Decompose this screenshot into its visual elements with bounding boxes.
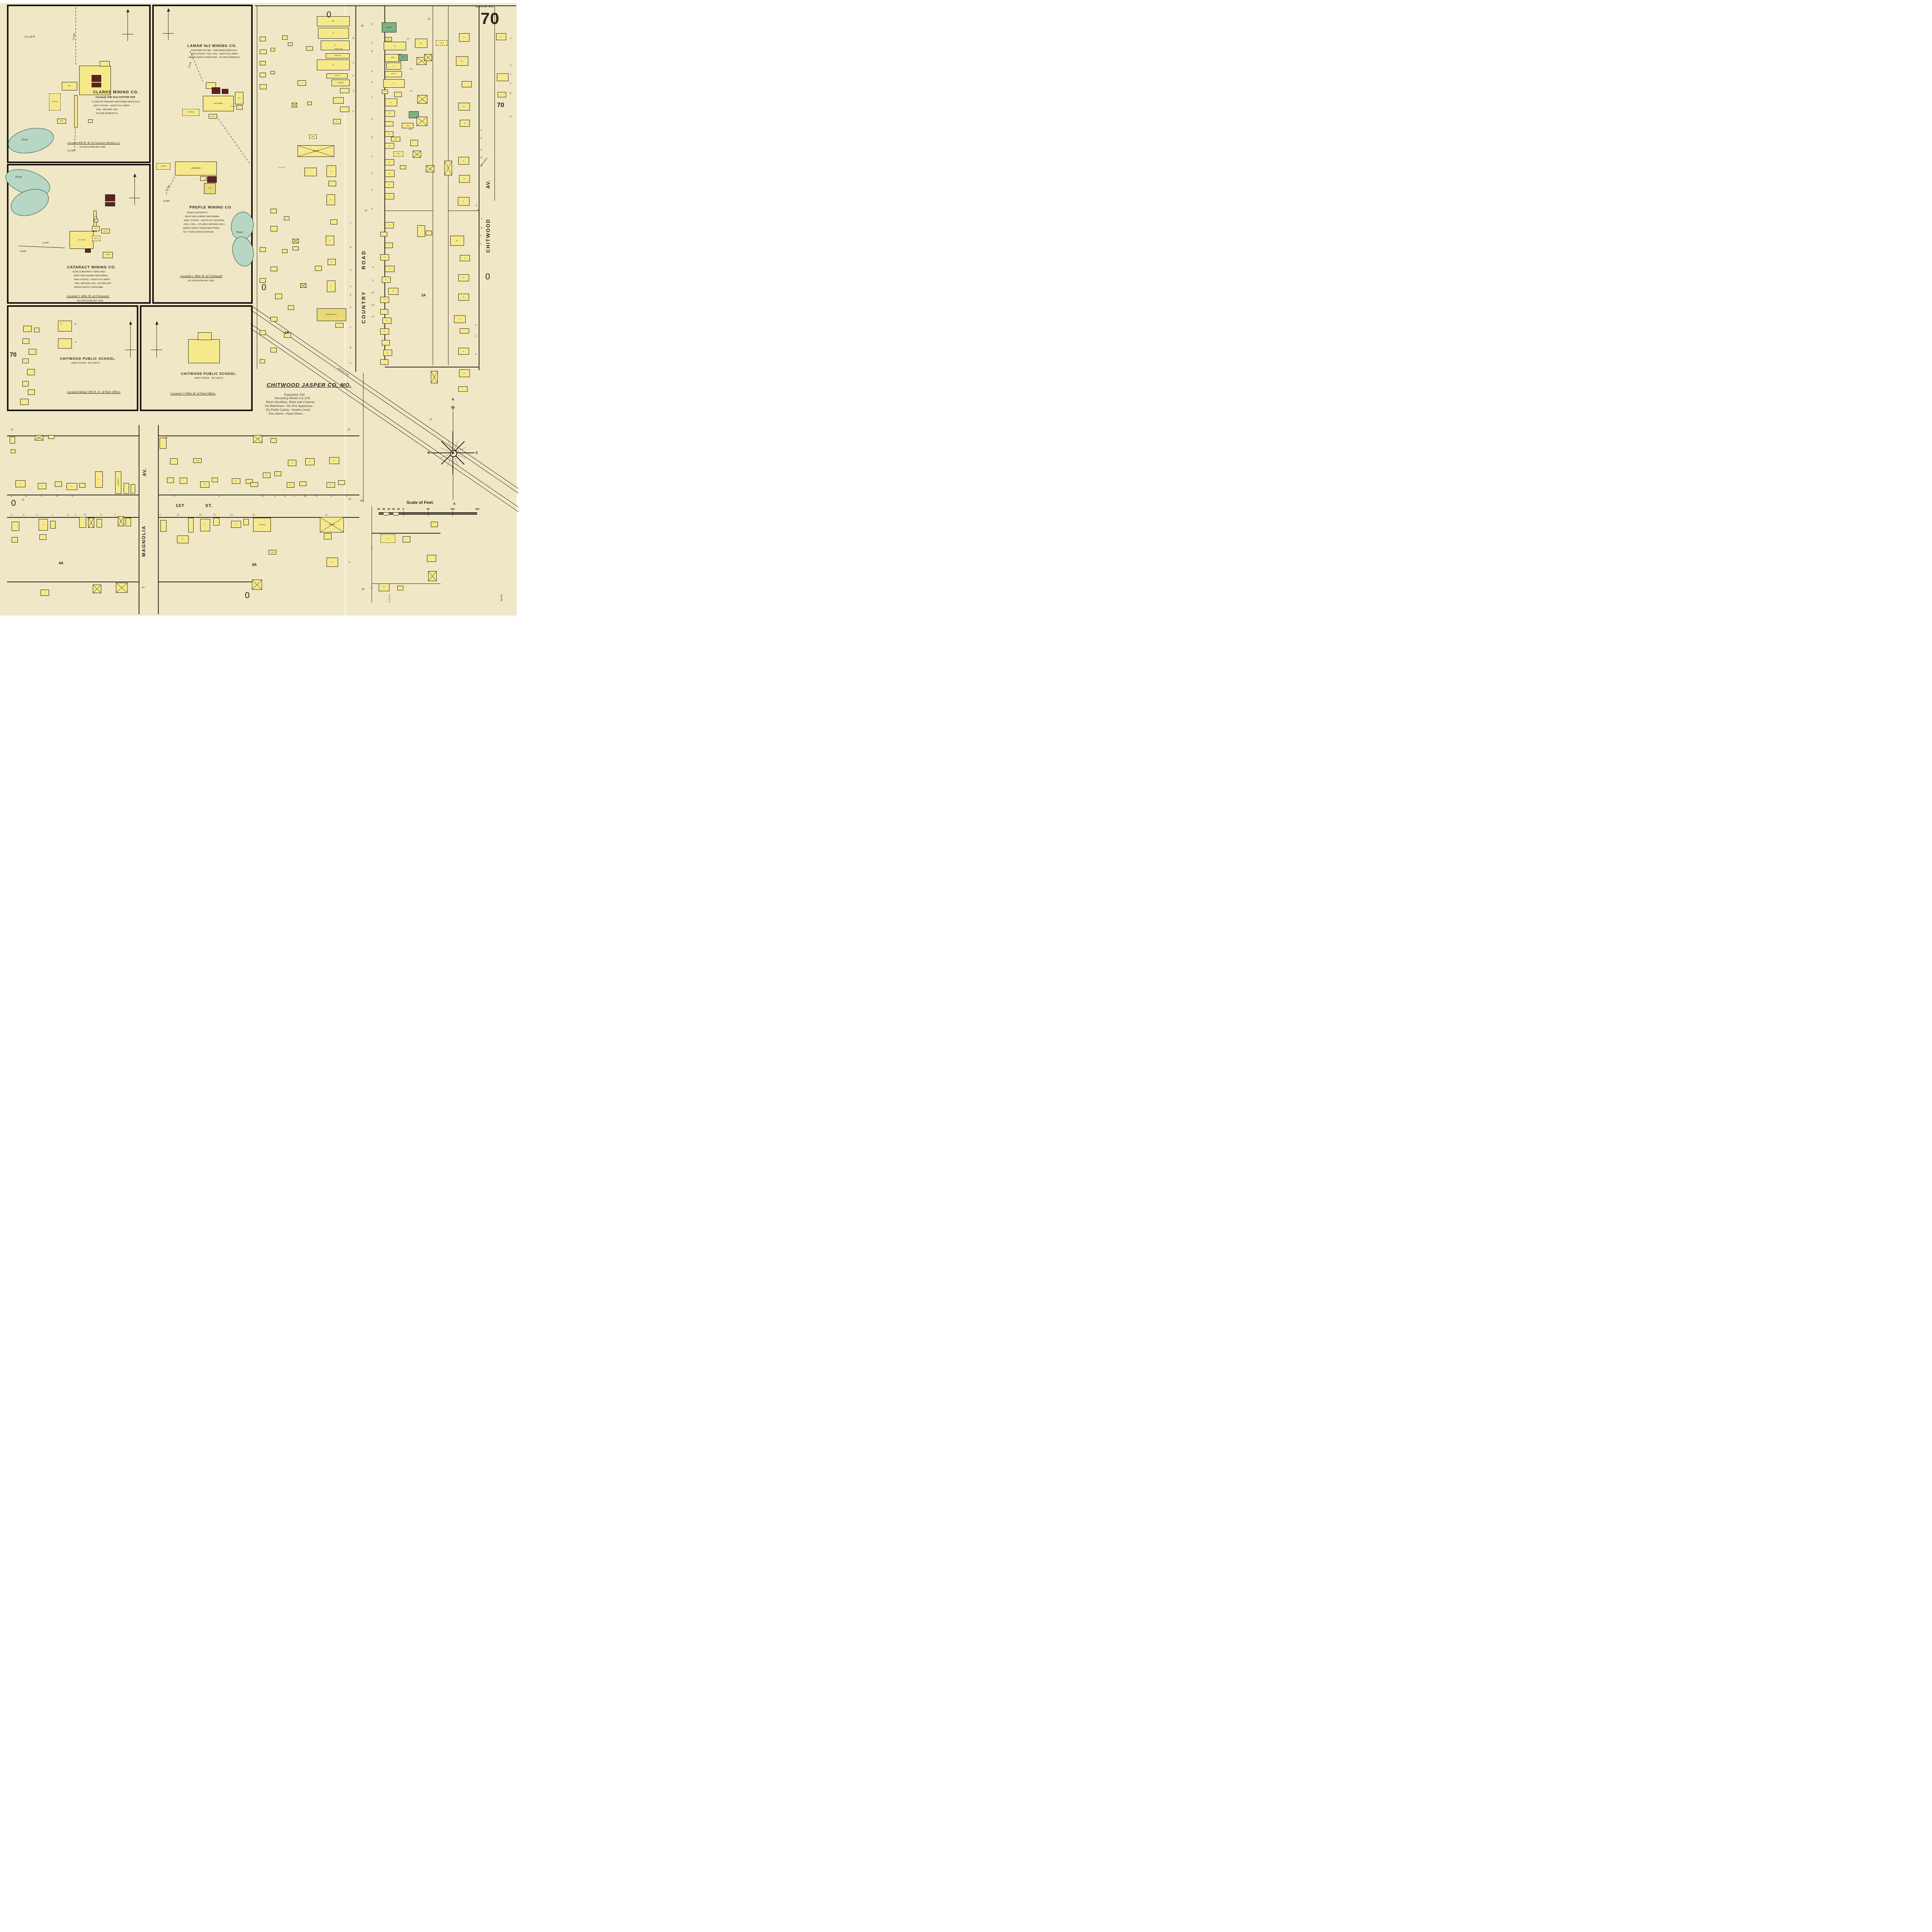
map-label: N. [480,148,483,151]
building-label: D. [71,486,73,487]
building: D. [458,197,469,206]
map-label: D2 [371,23,373,25]
building: D. [379,583,389,591]
scale-bar-tick-label: 20 [392,508,395,511]
map-label: Q. [10,514,12,516]
building [12,537,18,543]
building: D. [329,457,339,464]
building-label: D. [463,106,465,107]
north-arrow-head [133,173,136,177]
building: D. [327,165,336,177]
map-label: ST. [206,503,213,508]
building: D. [333,119,341,124]
building: D. [200,481,209,488]
map-label: A. [350,362,352,365]
building [400,165,406,169]
building-label: BLKSM. [386,27,392,28]
building-label: P.O. [384,91,386,92]
building-label: COAL [208,188,212,189]
building [335,323,344,328]
building-label: SHED [397,153,400,155]
map-label: WATER SUPPLY FROM DEEP POND.- [183,227,221,230]
building [382,340,390,345]
building [79,517,86,528]
building [92,83,101,87]
map-label: U. [352,75,355,77]
north-arrow-crossbar [151,350,162,350]
map-label: T. [510,73,512,76]
map-label: NO EXPOSURE ANY SIDE. [80,146,106,148]
building-label: ENG [68,85,71,87]
building: D. [327,482,335,488]
building [338,480,345,485]
map-label: M. [304,495,307,498]
building [74,95,78,128]
map-label: NO EXPOSURE ANY SIDE. [77,300,104,302]
map-label: S1 [371,207,373,209]
building: D. [415,39,427,48]
building [243,519,249,525]
building [250,482,258,487]
building: D. [496,33,506,40]
map-label: Y. [371,587,372,589]
building-label: D. [332,561,333,563]
building: D. [385,170,395,177]
map-label: Formerly THE OLD COTTON TOP. [95,96,135,99]
building [260,37,266,41]
map-label: P. [480,129,482,132]
building [253,435,262,443]
map-label: F. [372,279,374,282]
north-arrow [168,11,168,40]
building: JIG ROOM [175,162,217,175]
building [198,332,212,340]
building: OIL HO. [101,229,110,233]
map-label: B. [475,324,477,327]
building-label: D. [20,483,21,485]
building-label: BLKSM [106,254,110,255]
building [282,249,287,253]
building [212,87,220,94]
map-label: O. [330,495,332,498]
map-label: F. [480,243,481,246]
map-label: Located 400 ft. W. of Cataract Mining Co… [67,141,120,145]
scale-bar-gap [393,512,398,515]
compass-direction-label: S [453,502,455,506]
compass-needle-north [453,411,453,446]
map-label: 60' [142,587,145,589]
map-label: CHITWOOD PUBLIC SCHOOL. [181,372,237,376]
scale-bar-tick-label: 100 [451,508,455,511]
north-arrow-crossbar [125,350,136,350]
building: D. [458,103,470,111]
building-label: D. [235,480,237,482]
building: D. [385,143,394,149]
building-label: D. [204,524,206,526]
map-label: G1. [325,514,328,516]
building-label: OFFICE [391,73,396,75]
building-label: D. [463,201,464,202]
map-label: 63' [22,498,25,502]
building: D. [385,159,394,165]
building: Boarding [332,80,350,86]
building [288,43,293,46]
building [270,348,277,352]
building [410,140,418,146]
building: D. [383,318,391,324]
building: JIG ROOM [203,96,234,111]
building [444,161,452,175]
street-line [479,6,480,370]
building: D. [385,131,393,137]
map-label: C2½ [406,38,410,40]
building-label: D. [463,160,464,162]
map-label: N. [316,495,318,498]
map-label: J. [274,495,276,498]
map-label: W. [352,37,355,39]
building-label: D. [393,291,394,292]
map-label: 50' [361,25,364,27]
building [397,586,403,590]
map-label: LAMAR №2 MINING CO. [187,44,237,48]
map-label: K. [284,495,286,498]
building-label: SHED [60,121,63,122]
map-label: J. [350,222,352,225]
building [88,518,94,528]
building: D. [39,519,48,531]
building [260,73,266,77]
map-label: CHITWOOD JASPER CO. MO. [267,382,352,388]
building-label: D. [329,240,331,241]
building [23,326,32,332]
map-label: DUMP [25,36,36,39]
map-label: THREE R'MS [334,48,343,50]
building [88,119,93,123]
map-label: 20' [347,428,351,431]
map-label: PREPLE MINING CO. [189,206,232,210]
building [385,121,393,126]
building-label: S. [393,83,395,85]
map-label: T1 [371,189,373,191]
building [28,389,35,395]
map-label: E. [350,294,352,297]
building: D. [305,458,315,465]
map-label: FLUME [42,241,49,244]
map-label: J. [481,218,483,220]
building: ENG [92,226,100,231]
building-label: SHED [394,139,397,140]
north-arrow-crossbar [129,198,140,198]
map-label: B. [75,323,77,326]
scale-bar-tick [452,511,453,516]
map-label: RUNS CONSTANTLY DAYS ONLY.- [73,271,107,273]
map-label: 12 [60,323,62,325]
map-label: G. [350,269,352,272]
building [307,102,312,105]
map-label: No Watchman.- No Fire Apparatus.- [265,405,314,408]
building-label: D. [309,461,311,463]
building [340,88,349,93]
map-label: G. [218,495,220,498]
building [124,483,129,494]
building-label: OIL HO. [104,231,107,232]
building-label: D. [290,484,291,486]
map-label: NIGHT AND SUNDAY WATCHMAN.- [185,216,220,218]
building-label: ORE BINS [188,112,194,113]
map-label: 3A [252,563,257,567]
street-line [355,6,356,372]
building-label: KETTLE [401,57,405,58]
map-label: T. [52,514,53,516]
building: Sal. [317,16,350,26]
building [50,521,56,529]
map-label: 0 [485,272,490,282]
building: D. [232,478,240,484]
building [275,294,282,299]
building: S. [317,60,350,70]
sheet-number-side: 70 [497,101,504,109]
map-label: S. [510,82,512,85]
building [380,232,387,236]
building: D. [326,236,334,245]
building-label: D. [330,286,332,287]
map-label: CATARACT MINING CO. [67,265,116,270]
map-label: B. [25,495,27,498]
compass-hub-dot [452,452,454,454]
building-label: LODGE HALL. [326,314,337,316]
building-label: D. [336,121,338,122]
map-label: 15' [429,418,433,421]
north-arrow-head [126,9,129,12]
building: SHED [436,40,447,46]
scale-bar-title: Scale of Feet. [406,500,434,505]
map-label: A2 [371,70,373,72]
building-label: S. [333,32,334,34]
building [299,481,306,486]
map-label: R. [510,92,512,95]
building [212,478,218,482]
street-line [7,582,139,582]
building: D. [383,350,392,356]
building: SHED [193,458,202,463]
map-label: 0 [262,282,266,293]
street-line [385,367,479,367]
building [315,266,322,271]
map-label: U. [510,65,512,67]
map-label: E1. [371,291,375,294]
building-label: D. [43,524,44,526]
building [207,176,217,183]
map-label: RUNS PART OF TIME. - WATCHMAN WHEN IDLE.… [191,49,239,52]
building-label: OIL HO [211,116,214,117]
map-label: NO FIRE APPARATUS. [96,112,118,115]
building [236,105,243,110]
building: D. [454,315,466,323]
map-label: HEAT STOVES - LIGHTS OIL LAMPS.- [94,105,131,107]
building [260,247,266,252]
building: ENG [235,92,243,104]
map-label: X. [100,514,102,516]
building [260,359,265,363]
building-label: S. [332,64,334,66]
building [11,449,15,453]
building-label: D. [330,484,332,486]
building: D. [15,480,26,487]
building: D. [263,473,270,478]
map-label: C1. [371,315,375,318]
map-label: Fire Alarm.- Pistol Shots.- [269,412,304,415]
building-label: MEAT. [391,57,395,59]
building: D. [385,182,394,188]
building: D. [460,255,470,261]
map-label: M. [480,156,483,159]
building: D. [385,266,395,272]
building: D. [288,460,296,466]
building [188,518,194,532]
building [170,458,178,464]
map-label: G. [372,266,375,269]
map-label: D. [56,495,58,498]
map-label: A. [10,495,12,498]
corner-note: 35/70 B [501,595,503,601]
building-label: D. [420,43,422,44]
map-label: FUEL, COAL.- (TO HAVE NATURAL GAS.-) [184,223,225,226]
building [20,399,29,405]
building [385,243,393,248]
building-label: D. [384,299,386,301]
building [428,571,437,581]
street-line [385,211,433,211]
building [298,80,306,86]
building: D. [231,521,241,528]
building [92,75,101,82]
map-label: 60' [165,437,167,439]
building: D. [66,483,77,490]
building-label: D. [500,36,502,37]
building: S. [383,79,405,88]
map-label: H. [349,246,352,248]
building: D. [450,236,464,246]
building: D. [95,471,103,488]
map-label: 50' 1" HOSE IN BOILER ROOM. [183,231,214,233]
building [93,585,101,593]
compass-direction-label: E [476,451,478,455]
building [58,338,72,349]
building-label: D. [389,184,390,185]
map-label: 20' [11,428,14,431]
scale-bar-tick-label: 150 [475,508,480,511]
building [340,107,349,112]
building: D. [459,369,470,377]
street-line [448,6,448,365]
building: D. [38,483,46,489]
scale-bar-tick-label: 50 [377,508,380,511]
map-label: AV. [485,180,491,189]
map-label: S. [352,111,355,113]
building [213,518,219,526]
map-label: MAGNOLIA [141,525,146,556]
building [460,328,469,333]
building: D. [382,277,391,283]
building: D. [385,193,394,199]
building: OFFICE [327,73,348,78]
building-label: S. [334,44,336,46]
building [167,478,174,483]
building [380,359,388,365]
building [380,309,388,315]
street-line [7,435,139,436]
building-label: D. [389,145,390,147]
map-label: L. [480,164,483,167]
compass-spoke [431,452,453,453]
building: D. [386,63,401,70]
building [260,61,266,65]
building: JIG ROOM [70,231,94,249]
map-label: W1 [371,136,373,138]
building: KETTLE [398,54,408,61]
building: D. [459,33,469,42]
north-arrow-head [167,8,170,12]
building-label: D. [331,170,332,172]
building-label: D. [387,538,389,539]
building-label: D. [291,462,293,464]
map-label: Pond [22,139,27,141]
map-label: 63' [349,498,352,501]
map-label: CLARKE MINING CO. [93,90,139,95]
building: D. [380,254,389,260]
building [333,97,344,104]
building [394,92,402,97]
building: Lodging [402,123,413,128]
building: D. [328,259,336,265]
map-label: 25' [364,210,367,212]
map-label: DUMP [20,250,26,253]
building-label: D. [235,524,237,525]
building-label: D. [463,350,464,352]
building [55,481,62,487]
sheet-number: 70 [481,9,500,28]
north-arrow-crossbar [163,33,174,34]
building-label: D. [388,133,390,135]
building: Boarding [253,518,271,532]
street-line [158,495,359,495]
map-label: X1 [371,118,373,120]
map-label: H. [480,226,483,229]
building: S. [318,28,349,39]
map-label: COUNTRY [361,291,367,324]
building [160,438,167,449]
building-label: D. [389,162,390,163]
building [497,73,509,81]
building [85,248,91,253]
map-label: U1 [371,172,373,174]
map-label: P. [346,495,348,498]
map-label: Y. [114,514,116,516]
building [12,522,19,531]
building [293,247,299,250]
map-label: 1A [284,331,289,335]
map-label: L. [294,495,296,498]
building-label: D. [182,539,184,540]
building-label: D. [266,474,267,476]
building-label: D. [464,257,466,259]
map-label: V. [510,37,512,40]
building: OFF [385,37,392,41]
scale-bar-tick-label: 0 [403,508,404,511]
street-line [76,7,76,65]
building-label: D. [459,318,461,320]
map-label: 1ST [175,503,184,508]
